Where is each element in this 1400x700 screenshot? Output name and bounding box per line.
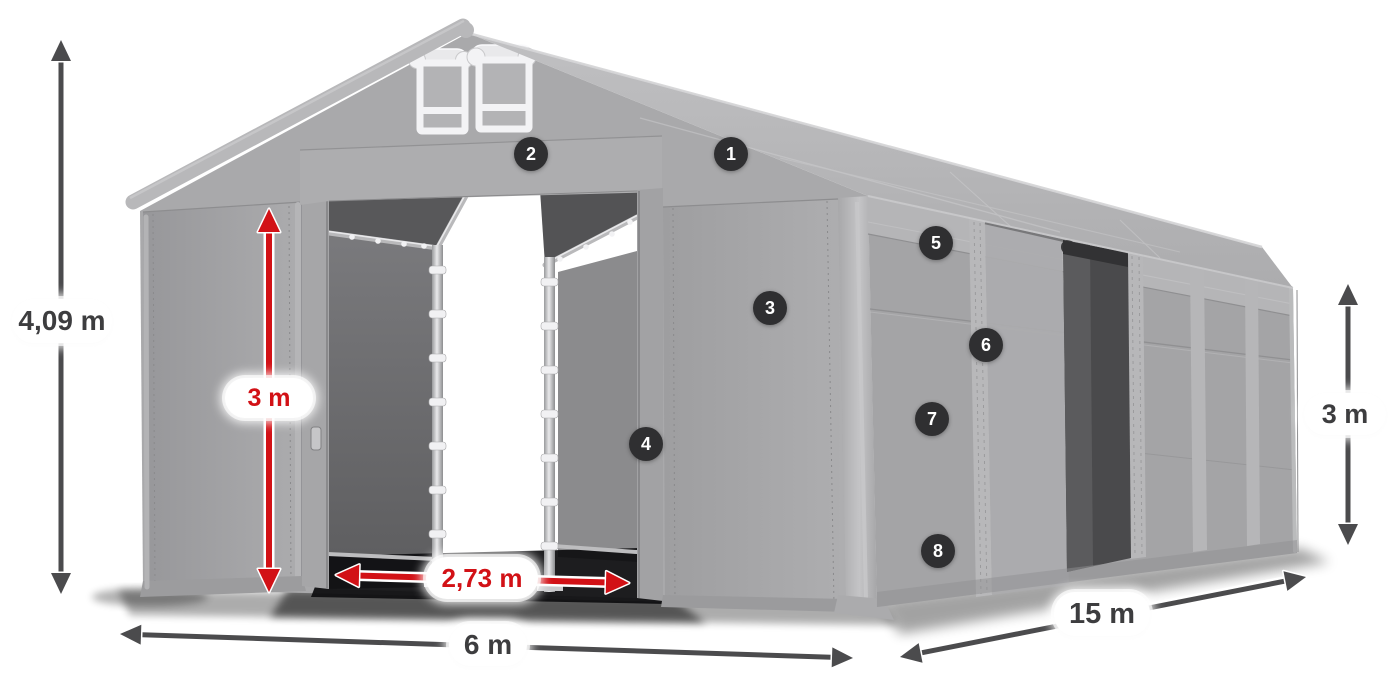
dimension-label-door-width: 2,73 m: [426, 557, 538, 599]
dimension-label-side-height: 3 m: [1304, 393, 1386, 435]
dimension-label-front-width: 6 m: [449, 624, 527, 666]
dimension-label-door-height: 3 m: [225, 378, 313, 418]
tent-dimensions-diagram: 12345678 4,09 m3 m2,73 m6 m15 m3 m: [0, 0, 1400, 700]
dimension-label-total-height: 4,09 m: [12, 299, 112, 343]
dimension-label-side-length: 15 m: [1054, 592, 1150, 636]
dimension-labels-layer: 4,09 m3 m2,73 m6 m15 m3 m: [0, 0, 1400, 700]
